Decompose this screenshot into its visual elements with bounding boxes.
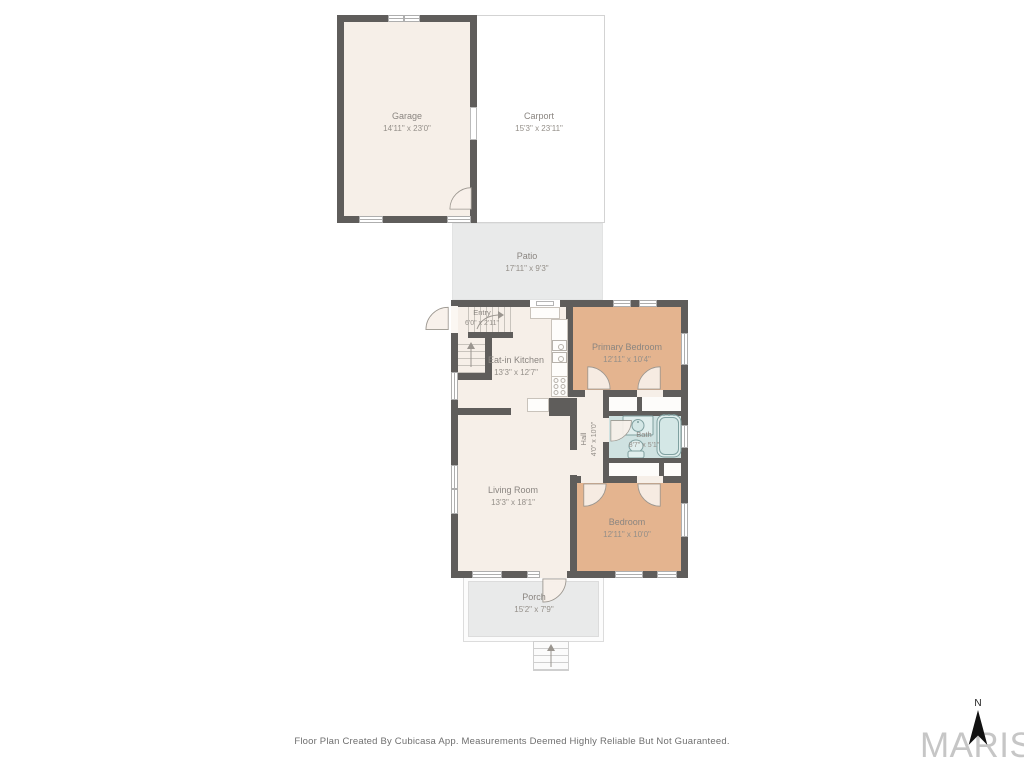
room-dims: 12'11" x 10'4" bbox=[592, 355, 662, 365]
garage-door-gap bbox=[470, 107, 477, 140]
primary-bedroom-label: Primary Bedroom 12'11" x 10'4" bbox=[592, 341, 662, 365]
wall bbox=[609, 390, 637, 397]
wall bbox=[570, 398, 577, 450]
patio-label: Patio 17'11" x 9'3" bbox=[505, 250, 548, 274]
kitchen-sink-basin bbox=[552, 340, 567, 351]
room-name: Hall bbox=[579, 422, 590, 457]
window bbox=[639, 300, 657, 307]
room-name: Garage bbox=[383, 110, 431, 124]
porch-steps-up-arrow-icon bbox=[545, 643, 557, 669]
window bbox=[451, 489, 458, 514]
window bbox=[451, 372, 458, 400]
door-gap bbox=[451, 306, 458, 333]
room-name: Patio bbox=[505, 250, 548, 264]
floor-plan-canvas: Garage 14'11" x 23'0" Carport 15'3" x 23… bbox=[0, 0, 1024, 768]
room-dims: 13'3" x 18'1" bbox=[488, 498, 538, 508]
north-label: N bbox=[968, 698, 988, 709]
living-room-label: Living Room 13'3" x 18'1" bbox=[488, 484, 538, 508]
window bbox=[681, 333, 688, 365]
wall bbox=[607, 476, 637, 483]
window bbox=[472, 571, 502, 578]
stove-burners-icon bbox=[551, 376, 568, 397]
maris-logo: MARIS bbox=[920, 726, 1024, 766]
kitchen-counter bbox=[530, 307, 560, 319]
disclaimer-text: Floor Plan Created By Cubicasa App. Meas… bbox=[0, 736, 1024, 747]
stair-up-arrow-icon bbox=[465, 341, 477, 369]
room-dims: 6'0" x 2'11" bbox=[465, 319, 499, 328]
bedroom-closet-door-swing-icon bbox=[637, 483, 663, 509]
closet-floor bbox=[609, 463, 681, 476]
carport-label: Carport 15'3" x 23'11" bbox=[515, 110, 563, 134]
wall bbox=[603, 458, 688, 463]
primary-bedroom-door-swing-icon bbox=[585, 364, 611, 390]
closet-divider-wall bbox=[659, 463, 664, 476]
room-dims: 17'11" x 9'3" bbox=[505, 264, 548, 274]
room-name: Entry bbox=[465, 308, 499, 319]
kitchen-label: Eat-in Kitchen 13'3" x 12'7" bbox=[488, 354, 544, 378]
room-name: Bedroom bbox=[603, 516, 651, 530]
room-dims: 15'3" x 23'11" bbox=[515, 124, 563, 134]
bath-label: Bath 8'7" x 5'1" bbox=[629, 430, 660, 450]
room-name: Carport bbox=[515, 110, 563, 124]
garage-window bbox=[388, 15, 404, 22]
bedroom-label: Bedroom 12'11" x 10'0" bbox=[603, 516, 651, 540]
window bbox=[681, 503, 688, 537]
room-name: Bath bbox=[629, 430, 660, 441]
room-name: Primary Bedroom bbox=[592, 341, 662, 355]
wall bbox=[570, 476, 581, 483]
window bbox=[613, 300, 631, 307]
closet-divider-wall bbox=[637, 397, 642, 411]
entry-label: Entry 6'0" x 2'11" bbox=[465, 308, 499, 328]
kitchen-counter bbox=[527, 398, 549, 412]
room-name: Eat-in Kitchen bbox=[488, 354, 544, 368]
wall bbox=[663, 390, 688, 397]
window bbox=[615, 571, 643, 578]
window bbox=[657, 571, 677, 578]
wall bbox=[663, 476, 688, 483]
room-dims: 15'2" x 7'9" bbox=[514, 605, 553, 615]
room-name: Living Room bbox=[488, 484, 538, 498]
room-dims: 13'3" x 12'7" bbox=[488, 368, 544, 378]
room-dims: 8'7" x 5'1" bbox=[629, 441, 660, 450]
room-dims: 12'11" x 10'0" bbox=[603, 530, 651, 540]
wall bbox=[458, 408, 511, 415]
garage-window bbox=[359, 216, 383, 223]
entry-door-swing-icon bbox=[425, 304, 451, 331]
patio-sliding-door bbox=[536, 301, 554, 306]
room-name: Porch bbox=[514, 591, 553, 605]
room-dims: 14'11" x 23'0" bbox=[383, 124, 431, 134]
wall bbox=[566, 390, 585, 397]
bedroom-door-swing-icon bbox=[581, 483, 607, 509]
closet-floor bbox=[609, 397, 681, 411]
window bbox=[451, 465, 458, 489]
porch-label: Porch 15'2" x 7'9" bbox=[514, 591, 553, 615]
garage-door-swing-icon bbox=[449, 184, 474, 211]
wall bbox=[570, 483, 577, 571]
bathtub-icon bbox=[657, 414, 681, 457]
hall-label: Hall 4'0" x 10'0" bbox=[579, 422, 599, 457]
window bbox=[527, 571, 540, 578]
kitchen-sink-basin bbox=[552, 352, 567, 363]
room-dims: 4'0" x 10'0" bbox=[590, 422, 599, 457]
stair-wall bbox=[458, 373, 492, 380]
primary-bedroom-closet-door-swing-icon bbox=[637, 364, 663, 390]
garage-label: Garage 14'11" x 23'0" bbox=[383, 110, 431, 134]
garage-window bbox=[404, 15, 420, 22]
door-gap bbox=[540, 571, 567, 578]
garage-window bbox=[447, 216, 471, 223]
